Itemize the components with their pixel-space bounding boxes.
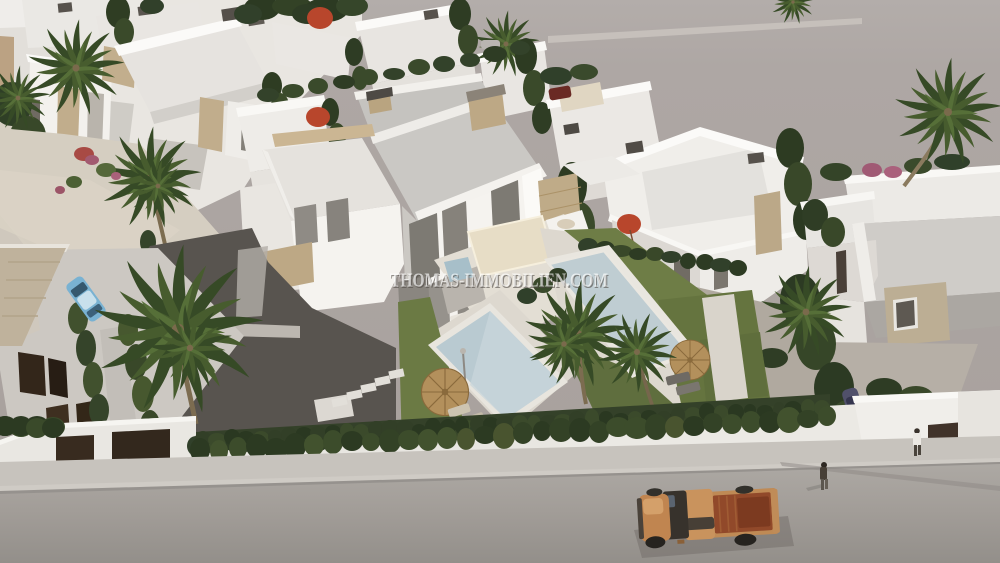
svg-text:THOMAS-IMMOBILIEN.COM: THOMAS-IMMOBILIEN.COM [390,270,608,292]
